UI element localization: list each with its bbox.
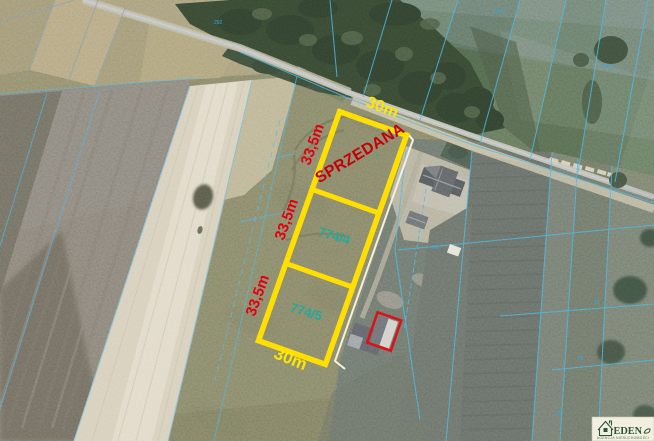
svg-text:AGENCJA NIERUCHOMOŚCI: AGENCJA NIERUCHOMOŚCI xyxy=(597,435,649,440)
